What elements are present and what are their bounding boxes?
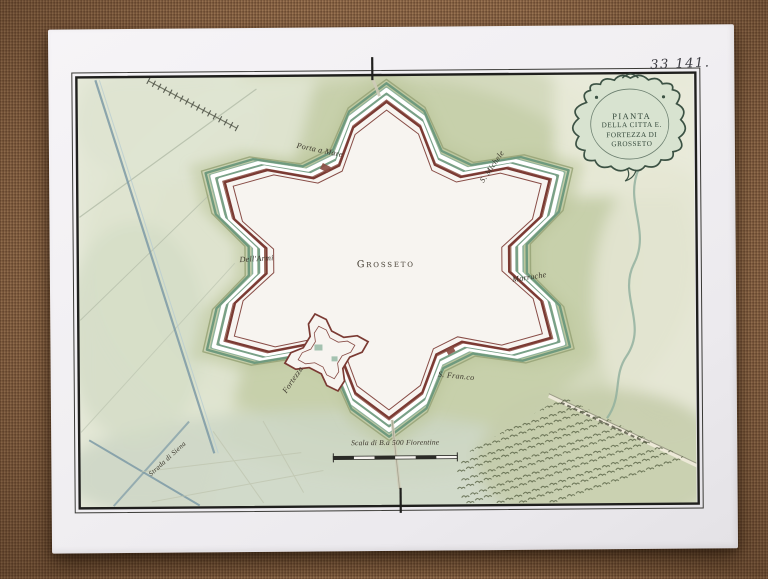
label-grosseto-city: Grosseto — [346, 259, 426, 271]
cartouche-title: PIANTA DELLA CITTA E. FORTEZZA DI GROSSE… — [585, 111, 679, 150]
handwritten-sheet-number: 33 141. — [650, 55, 711, 73]
map-drawing — [0, 0, 768, 579]
photo-of-antique-map: { "photo": { "fabric_color": "#8d6849", … — [0, 0, 768, 576]
scale-caption: Scala di B.a 500 Fiorentine — [331, 437, 459, 447]
photo-scene: 33 141. PIANTA DELLA CITTA E. FORTEZZA D… — [0, 0, 768, 579]
cartouche-line-4: GROSSETO — [585, 140, 679, 150]
